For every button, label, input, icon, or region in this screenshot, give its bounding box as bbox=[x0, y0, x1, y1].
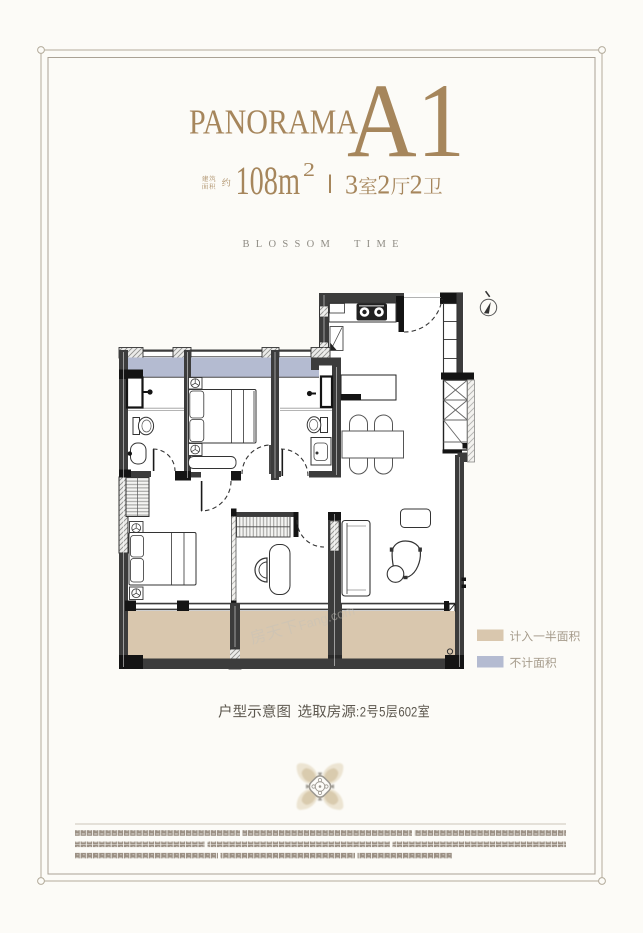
svg-text:A1: A1 bbox=[347, 62, 465, 179]
svg-text:2: 2 bbox=[303, 159, 315, 181]
svg-text:3: 3 bbox=[345, 169, 358, 199]
svg-text:2: 2 bbox=[377, 169, 390, 199]
svg-text::: : bbox=[356, 705, 359, 720]
svg-text:108m: 108m bbox=[236, 158, 301, 203]
svg-text:2: 2 bbox=[360, 705, 366, 720]
svg-text:PANORAMA: PANORAMA bbox=[189, 104, 358, 142]
svg-text:5: 5 bbox=[379, 705, 385, 720]
svg-text:2: 2 bbox=[410, 169, 423, 199]
svg-text:602: 602 bbox=[398, 705, 417, 720]
